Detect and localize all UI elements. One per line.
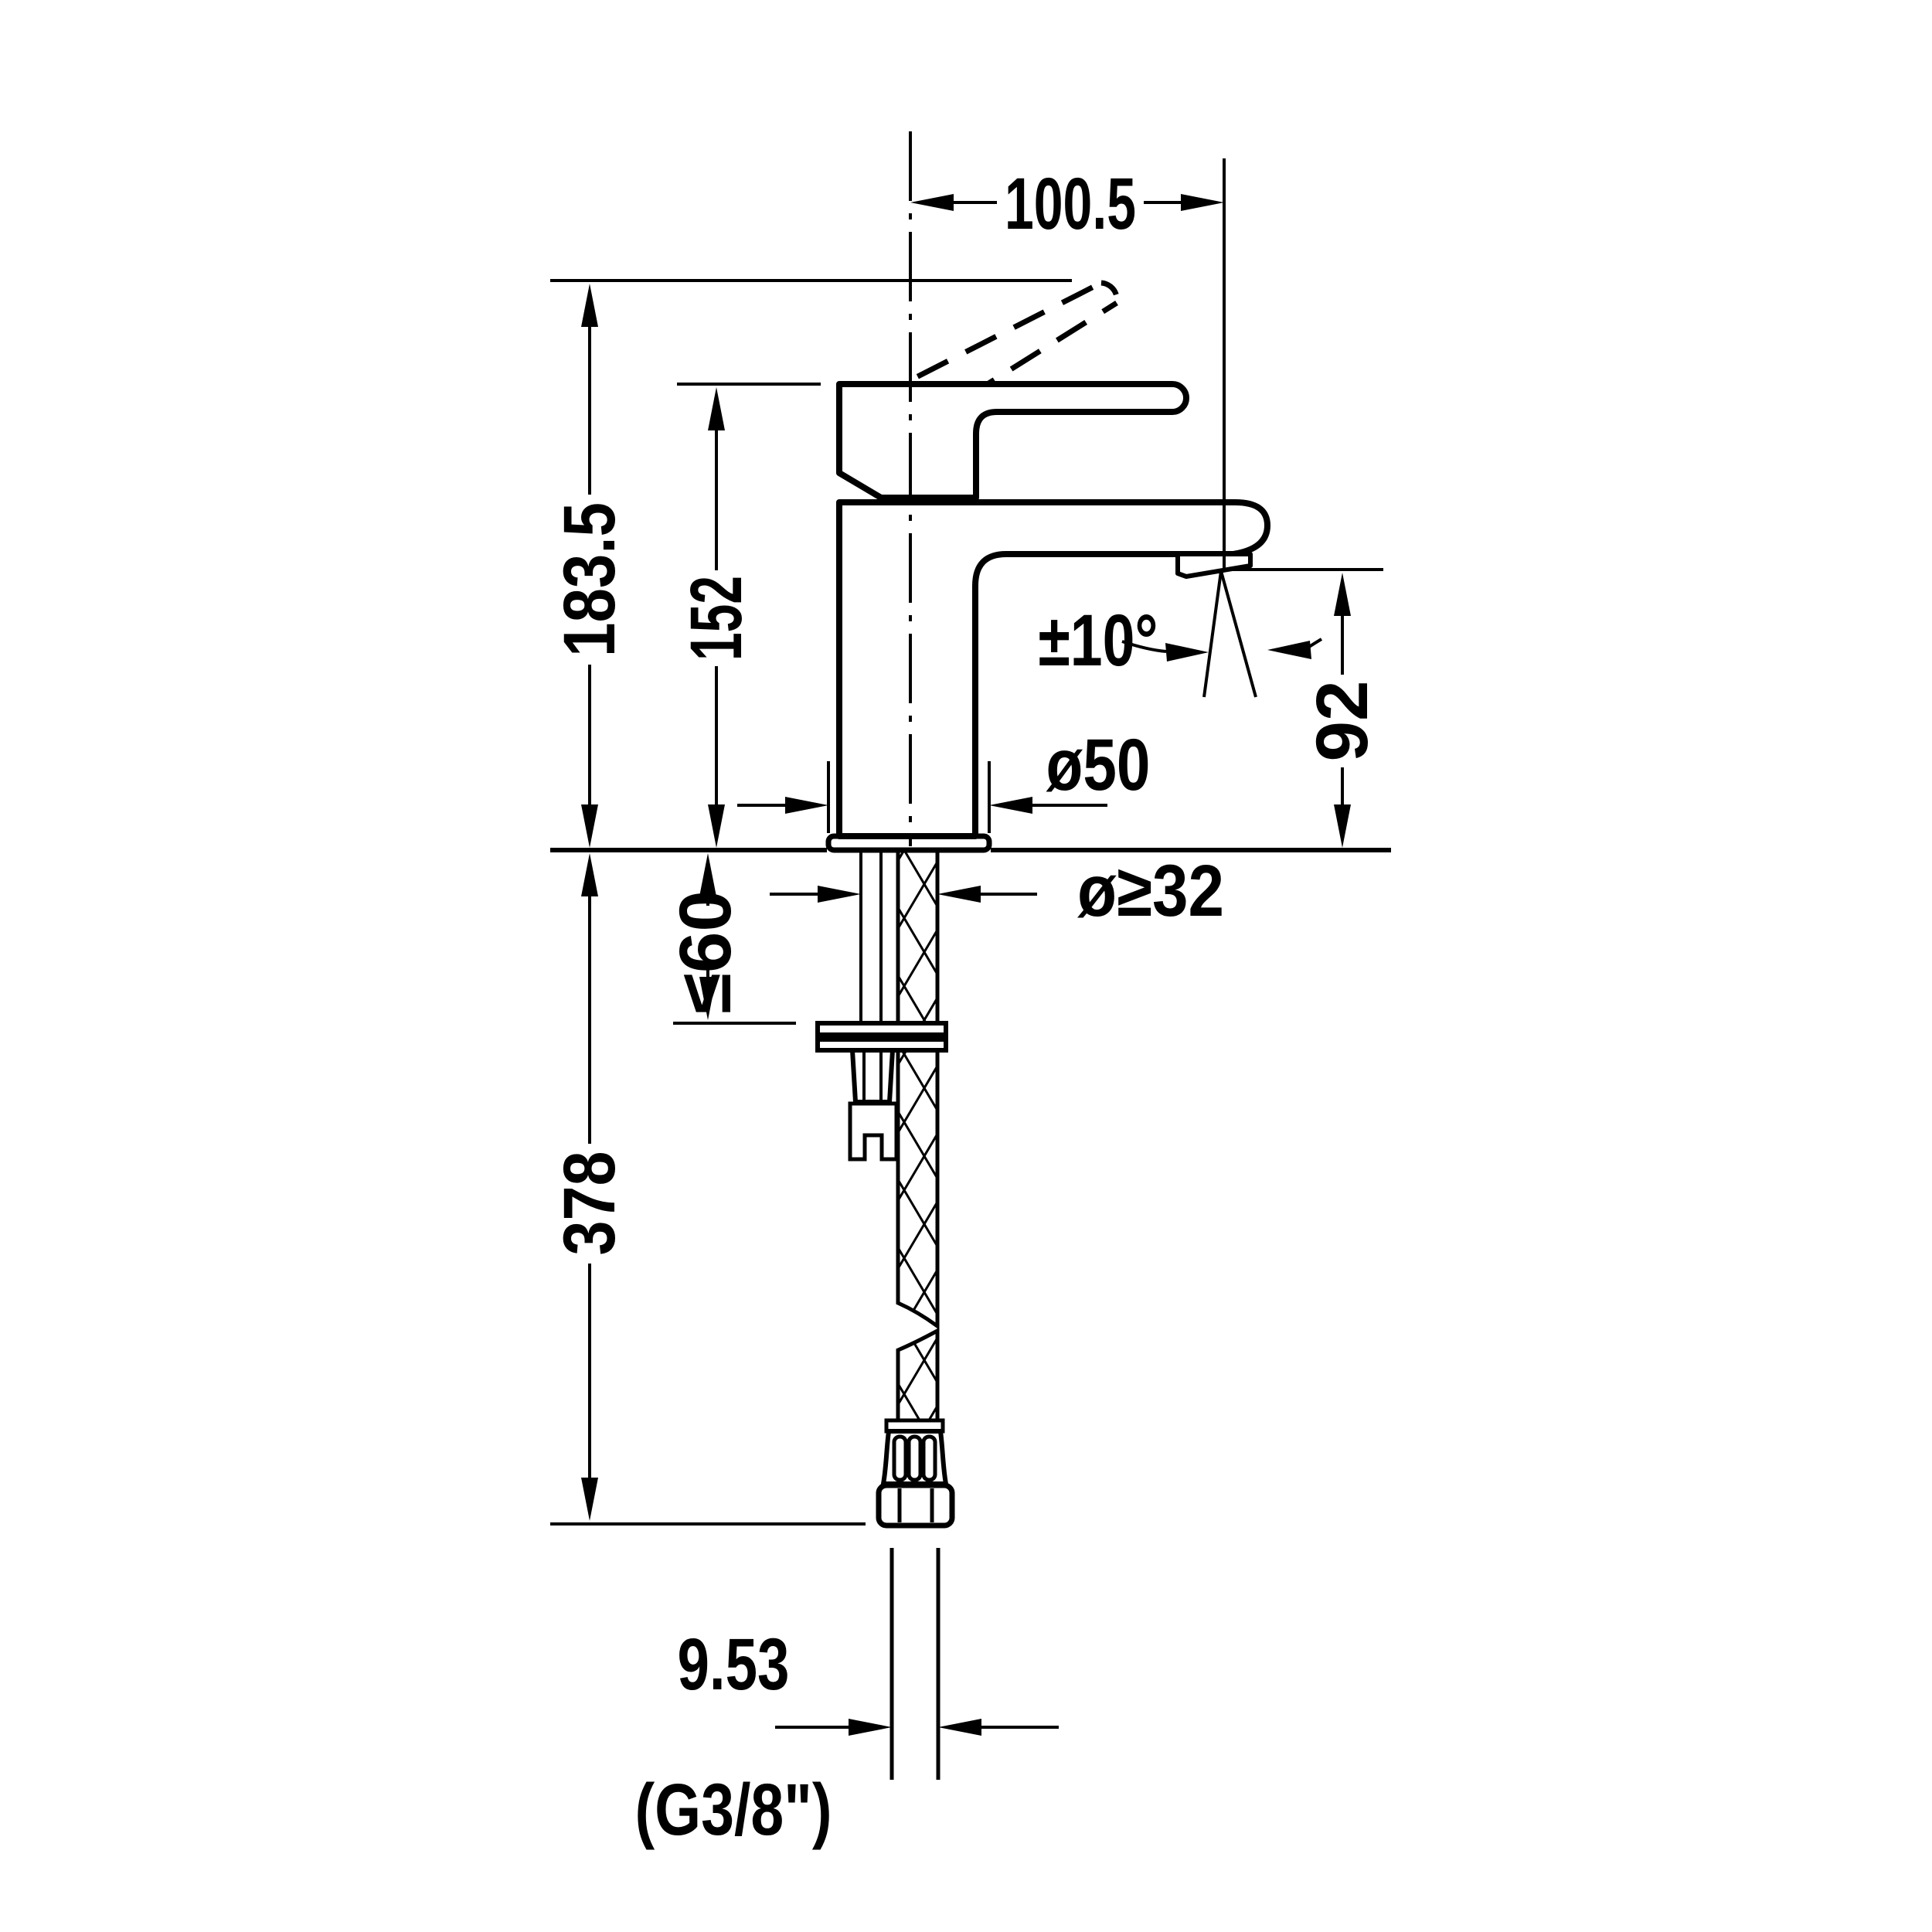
handle-lever <box>839 384 1186 498</box>
dim-connector-diameter-label: 9.53 <box>678 1624 790 1706</box>
dim-spout-reach: 100.5 <box>910 163 1224 245</box>
aerator-outlet <box>1178 554 1250 577</box>
dim-below-deck-length-label: 378 <box>549 1151 631 1256</box>
dim-height-to-handle: 152 <box>675 384 821 848</box>
swivel-angle-annotation: ±10° <box>1039 571 1322 697</box>
dim-overall-height: 183.5 <box>549 281 1072 848</box>
faucet-dimension-drawing: 100.5 183.5 152 92 ±10° <box>0 0 1932 1932</box>
dim-min-hole-diameter: ø≥32 <box>770 850 1224 932</box>
dim-spout-reach-label: 100.5 <box>1005 163 1136 245</box>
washer-plates <box>818 1023 946 1050</box>
dim-base-diameter-label: ø50 <box>1046 724 1151 806</box>
supply-hose <box>898 850 937 1420</box>
hose-hex-nut <box>879 1485 952 1526</box>
dim-overall-height-label: 183.5 <box>549 502 631 657</box>
mounting-nut <box>852 1050 893 1102</box>
hose-lower-segment <box>898 1331 937 1420</box>
swivel-angle-label: ±10° <box>1039 600 1158 682</box>
dim-height-to-handle-label: 152 <box>675 576 757 661</box>
rod-end <box>850 1104 896 1159</box>
mounting-rod <box>861 849 881 1023</box>
dim-max-deck-thickness: ≤60 <box>665 853 796 1023</box>
dim-min-hole-diameter-label: ø≥32 <box>1077 850 1224 932</box>
hose-upper-segment <box>898 850 937 1326</box>
dim-max-deck-thickness-label: ≤60 <box>665 890 747 1014</box>
thread-designation-label: (G3/8") <box>635 1769 832 1851</box>
technical-drawing-page: 100.5 183.5 152 92 ±10° <box>0 0 1932 1932</box>
dim-connector: 9.53 (G3/8") <box>635 1624 1060 1851</box>
dim-spout-outlet-height: 92 <box>1223 570 1383 848</box>
dim-spout-outlet-height-label: 92 <box>1301 681 1383 762</box>
hose-end-fitting <box>879 1420 952 1780</box>
